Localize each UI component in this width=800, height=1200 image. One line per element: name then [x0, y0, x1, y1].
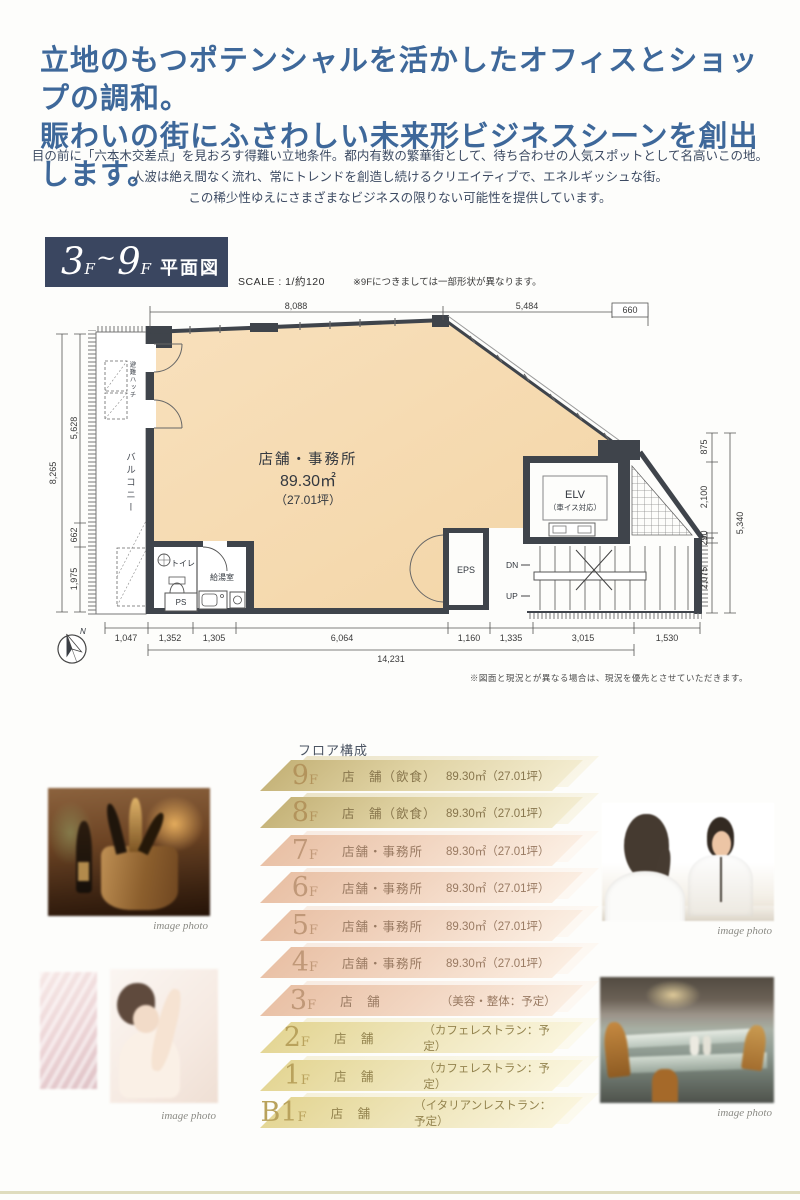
floor-number: 6F	[260, 872, 318, 903]
photo-caption: image photo	[153, 920, 208, 932]
intro-line2: 人波は絶え間なく流れ、常にトレンドを創造し続けるクリエイティブで、エネルギッシュ…	[0, 167, 800, 188]
floor-area: 89.30㎡（27.01坪）	[446, 843, 550, 859]
dim-left-total: 8,265	[48, 462, 58, 485]
eps-label: EPS	[457, 565, 475, 575]
dim-bottom-total: 14,231	[377, 654, 405, 664]
dim-top-3: 660	[622, 305, 637, 315]
floor-row-6f: 6F 店舗・事務所 89.30㎡（27.01坪）	[260, 872, 552, 903]
intro-paragraph: 目の前に「六本木交差点」を見おろす得難い立地条件。都内有数の繁華街として、待ち合…	[0, 146, 800, 209]
intro-line1: 目の前に「六本木交差点」を見おろす得難い立地条件。都内有数の繁華街として、待ち合…	[0, 146, 800, 167]
floor-number: B1F	[260, 1097, 307, 1128]
floor-area: 89.30㎡（27.01坪）	[446, 955, 550, 971]
floor-use: 店 舗	[331, 1103, 415, 1122]
room-area: 89.30㎡	[280, 472, 336, 490]
photo-consultation: image photo	[602, 803, 774, 921]
photo-spa-image	[38, 966, 218, 1106]
floor-area: 89.30㎡（27.01坪）	[446, 768, 550, 784]
hatched-triangle	[632, 466, 692, 535]
kitchen-label: 給湯室	[210, 572, 234, 582]
floor-number: 4F	[260, 947, 318, 978]
floor-area: 89.30㎡（27.01坪）	[446, 805, 550, 821]
photo-consultation-image	[602, 803, 774, 921]
floor-row-1f: 1F 店 舗 （カフェレストラン：予定）	[260, 1060, 552, 1091]
floor-use: 店舗・事務所	[342, 953, 446, 972]
dim-top-1: 8,088	[285, 301, 308, 311]
floor-area: 89.30㎡（27.01坪）	[446, 918, 550, 934]
dim-bottom-5: 1,160	[458, 633, 481, 643]
dim-right-total: 5,340	[735, 512, 745, 535]
floor-use: 店 舗（飲食）	[342, 766, 446, 785]
floor-row-5f: 5F 店舗・事務所 89.30㎡（27.01坪）	[260, 910, 552, 941]
floor-row-8f: 8F 店 舗（飲食） 89.30㎡（27.01坪）	[260, 797, 552, 828]
brochure-page: 立地のもつポテンシャルを活かしたオフィスとショップの調和。 賑わいの街にふさわし…	[0, 0, 800, 1200]
dim-bottom-3: 1,305	[203, 633, 226, 643]
dim-bottom-7: 3,015	[572, 633, 595, 643]
floor-area: （イタリアンレストラン：予定）	[414, 1097, 552, 1129]
photo-caption: image photo	[161, 1110, 216, 1122]
dim-right-4: 2,075	[699, 567, 709, 590]
scale-row: SCALE : 1/約120 ※9Fにつきましては一部形状が異なります。	[238, 274, 542, 289]
floor-plan-drawing: 8,088 5,484 660 1,047 1,352 1,305 6,064 …	[40, 296, 752, 690]
dim-bottom-2: 1,352	[159, 633, 182, 643]
staircase	[521, 546, 688, 610]
hatch-label: 避難ハッチ	[126, 361, 136, 399]
floor-row-9f: 9F 店 舗（飲食） 89.30㎡（27.01坪）	[260, 760, 552, 791]
floor-area: （美容・整体：予定）	[441, 993, 552, 1009]
dim-top-2: 5,484	[516, 301, 539, 311]
dim-bottom-1: 1,047	[115, 633, 138, 643]
photo-caption: image photo	[717, 925, 772, 937]
floor-row-3f: 3F 店 舗 （美容・整体：予定）	[260, 985, 552, 1016]
compass-north-label: N	[80, 627, 86, 636]
photo-restaurant-image	[600, 977, 774, 1103]
floor-number: 8F	[260, 797, 318, 828]
floor-number: 9F	[260, 760, 318, 791]
floor-use: 店舗・事務所	[342, 916, 446, 935]
floor-use: 店舗・事務所	[342, 878, 446, 897]
dim-bottom-8: 1,530	[656, 633, 679, 643]
elv-label: ELV	[565, 489, 586, 501]
floor-use: 店 舗	[334, 1066, 423, 1085]
room-label: 店舗・事務所	[259, 451, 358, 468]
floor-row-2f: 2F 店 舗 （カフェレストラン：予定）	[260, 1022, 552, 1053]
floor-row-7f: 7F 店舗・事務所 89.30㎡（27.01坪）	[260, 835, 552, 866]
balcony-label: バルコニー	[122, 452, 136, 515]
floor-area: （カフェレストラン：予定）	[423, 1060, 552, 1092]
room-tsubo: （27.01坪）	[275, 493, 341, 507]
note-9f: ※9Fにつきましては一部形状が異なります。	[353, 274, 542, 288]
toilet-label: トイレ	[171, 559, 195, 568]
floor-number: 7F	[260, 835, 318, 866]
intro-line3: この稀少性ゆえにさまざまなビジネスの限りない可能性を提供しています。	[0, 188, 800, 209]
dim-bottom-4: 6,064	[331, 633, 354, 643]
dim-left-2: 662	[69, 527, 79, 542]
dim-right-1: 875	[699, 439, 709, 454]
floor-number: 2F	[260, 1022, 310, 1053]
plan-disclaimer: ※図面と現況とが異なる場合は、現況を優先とさせていただきます。	[470, 672, 748, 684]
dim-left-1: 5,628	[69, 417, 79, 440]
floor-use: 店 舗	[334, 1028, 423, 1047]
stairs-dn-label: DN	[506, 560, 518, 570]
stairs-up-label: UP	[506, 591, 518, 601]
dim-right-3: 290	[699, 530, 709, 545]
ps-label: PS	[176, 598, 187, 607]
range-num-9: 9	[117, 237, 141, 287]
floor-number: 3F	[260, 985, 316, 1016]
scale-label: SCALE : 1/約120	[238, 274, 325, 289]
plan-title-box: 3F~9F 平面図	[45, 237, 228, 287]
dim-bottom-6: 1,335	[500, 633, 523, 643]
dim-left-3: 1,975	[69, 568, 79, 591]
elv-sub-label: （車イス対応）	[549, 502, 601, 512]
tilde: ~	[96, 244, 116, 272]
floor-use: 店 舗（飲食）	[342, 803, 446, 822]
photo-champagne-image	[48, 788, 210, 916]
bottom-rule	[0, 1191, 800, 1194]
floor-area: （カフェレストラン：予定）	[423, 1022, 552, 1054]
floor-use: 店舗・事務所	[342, 841, 446, 860]
dim-right-2: 2,100	[699, 486, 709, 509]
headline-line1: 立地のもつポテンシャルを活かしたオフィスとショップの調和。	[40, 45, 758, 115]
floor-use: 店 舗	[340, 991, 441, 1010]
range-num-3: 3	[61, 237, 85, 287]
balcony-area	[88, 326, 150, 616]
floor-row-4f: 4F 店舗・事務所 89.30㎡（27.01坪）	[260, 947, 552, 978]
floor-area: 89.30㎡（27.01坪）	[446, 880, 550, 896]
floor-row-b1f: B1F 店 舗 （イタリアンレストラン：予定）	[260, 1097, 552, 1128]
photo-restaurant: image photo	[600, 977, 774, 1103]
floor-number: 1F	[260, 1060, 310, 1091]
photo-spa: image photo	[38, 966, 218, 1106]
plan-title-label: 平面図	[160, 254, 220, 280]
photo-champagne: image photo	[48, 788, 210, 916]
floor-number: 5F	[260, 910, 318, 941]
stair-hatch-bottom	[528, 613, 702, 619]
photo-caption: image photo	[717, 1107, 772, 1119]
